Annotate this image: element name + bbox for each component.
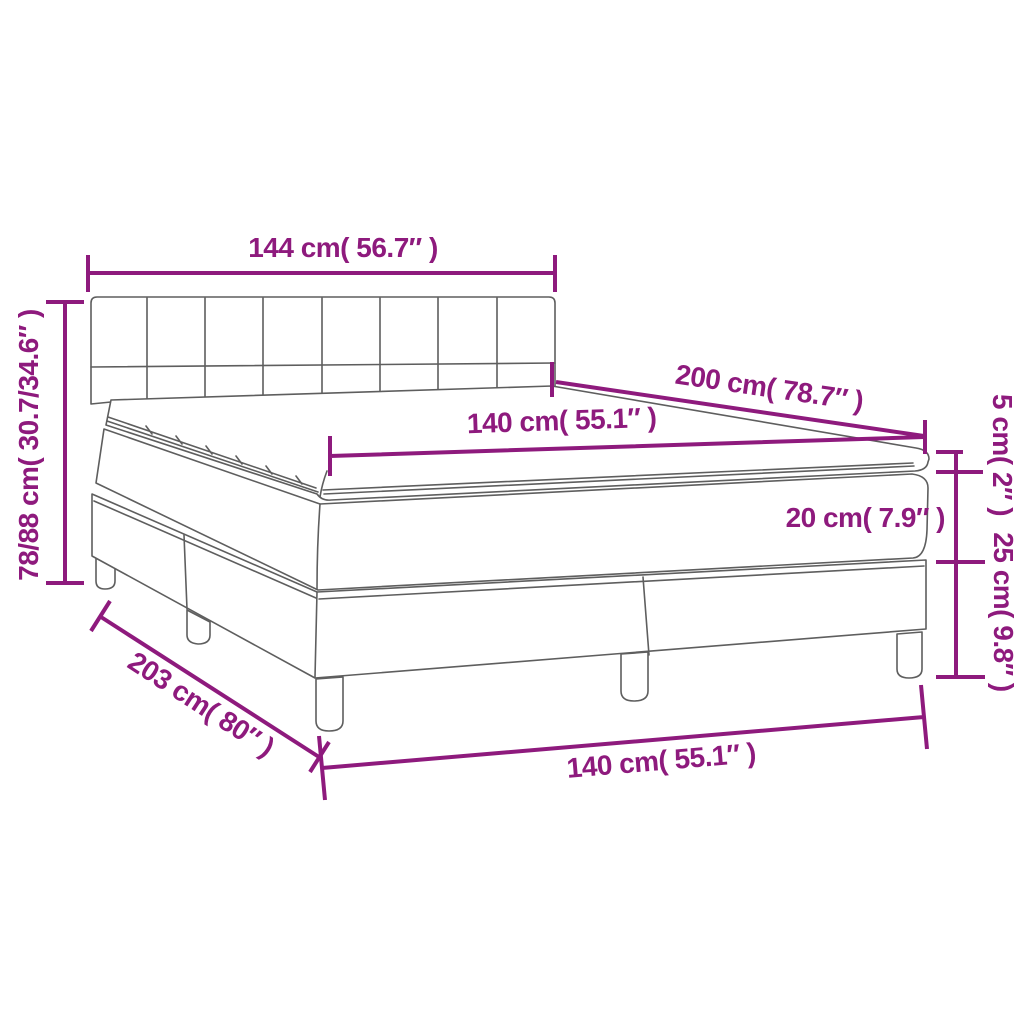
bed-leg: [621, 652, 648, 701]
label-mattress-length: 200 cm( 78.7″ ): [673, 359, 865, 417]
dim-bed-width-line: [319, 685, 927, 800]
label-bed-height: 78/88 cm( 30.7/34.6″ ): [13, 309, 44, 581]
diagram-canvas: 144 cm( 56.7″ ) 78/88 cm( 30.7/34.6″ ) 2…: [0, 0, 1024, 1024]
label-base-height: 25 cm( 9.8″ ): [988, 532, 1019, 691]
label-bed-length: 203 cm( 80″ ): [123, 645, 280, 762]
label-mattress-height: 20 cm( 7.9″ ): [786, 502, 945, 533]
bed-leg: [897, 632, 922, 678]
bed-leg: [316, 677, 343, 731]
bed-dimension-diagram: 144 cm( 56.7″ ) 78/88 cm( 30.7/34.6″ ) 2…: [0, 0, 1024, 1024]
label-mattress-width: 140 cm( 55.1″ ): [466, 402, 657, 440]
dim-bed-height-line: [46, 302, 84, 583]
label-headboard-width: 144 cm( 56.7″ ): [248, 232, 438, 263]
dim-layer-heights-bracket: [936, 452, 985, 677]
label-topper-height: 5 cm( 2″ ): [987, 394, 1018, 516]
